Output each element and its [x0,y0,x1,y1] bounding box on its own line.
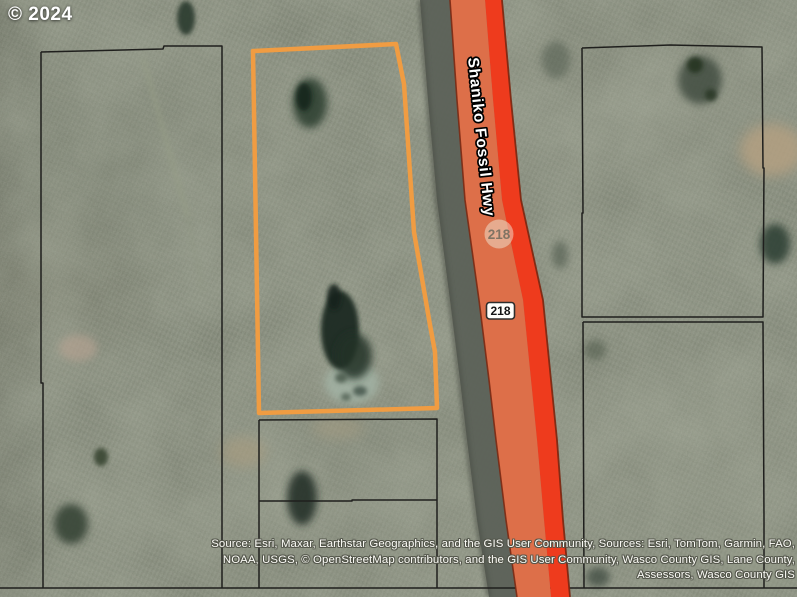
route-badge-faded: 218 [485,220,514,249]
attribution-block: Source: Esri, Maxar, Earthstar Geographi… [110,537,795,584]
attribution-line-2: NOAA, USGS, © OpenStreetMap contributors… [110,553,795,569]
attribution-line-1: Source: Esri, Maxar, Earthstar Geographi… [110,537,795,553]
copyright-label: © 2024 [8,4,73,26]
attribution-line-3: Assessors, Wasco County GIS [110,568,795,584]
map-canvas: 218 218 Shaniko Fossil Hwy © 2024 Source… [0,0,797,597]
terrain-texture [0,0,797,597]
satellite-basemap: 218 218 Shaniko Fossil Hwy [0,0,797,597]
route-badge-faded-number: 218 [488,227,511,242]
route-badge-shield: 218 [487,303,515,320]
route-badge-shield-number: 218 [490,304,510,318]
